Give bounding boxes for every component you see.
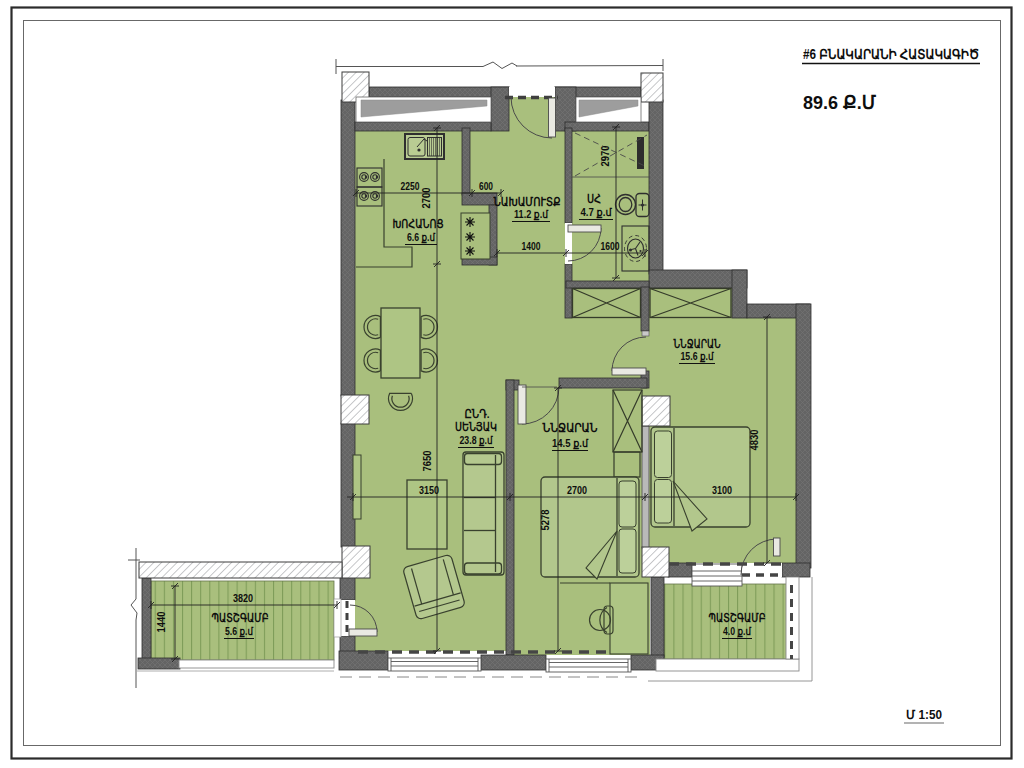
svg-text:#6 ԲՆԱԿԱՐԱՆԻ ՀԱՏԱԿԱԳԻԾ: #6 ԲՆԱԿԱՐԱՆԻ ՀԱՏԱԿԱԳԻԾ [803, 46, 979, 62]
svg-text:ՆԱԽԱՄՈՒՏՔ: ՆԱԽԱՄՈՒՏՔ [493, 196, 561, 208]
svg-text:4830: 4830 [749, 429, 760, 450]
svg-text:3150: 3150 [419, 485, 439, 496]
svg-text:1440: 1440 [156, 611, 167, 632]
svg-text:15.6 ք.մ: 15.6 ք.մ [681, 350, 715, 363]
svg-text:11.2 ք.մ: 11.2 ք.մ [514, 208, 549, 221]
svg-text:89.6 Ք.Մ: 89.6 Ք.Մ [803, 92, 876, 113]
svg-text:ՊԱՏՇԳԱՄԲ: ՊԱՏՇԳԱՄԲ [709, 612, 766, 624]
svg-text:ՍՀ: ՍՀ [587, 193, 601, 205]
svg-text:4.7 ք.մ: 4.7 ք.մ [581, 206, 613, 219]
svg-text:ՊԱՏՇԳԱՄԲ: ՊԱՏՇԳԱՄԲ [212, 612, 269, 624]
svg-text:ՆՆՋԱՐԱՆ: ՆՆՋԱՐԱՆ [542, 422, 598, 434]
svg-text:2700: 2700 [421, 187, 432, 208]
svg-text:5.6 ք.մ: 5.6 ք.մ [225, 625, 254, 638]
svg-text:ԽՈՀԱՆՈՑ: ԽՈՀԱՆՈՑ [393, 218, 444, 230]
svg-text:23.8 ք.մ: 23.8 ք.մ [460, 434, 494, 447]
svg-text:ՍԵՆՅԱԿ: ՍԵՆՅԱԿ [455, 421, 497, 433]
svg-text:ԸՆԴ.: ԸՆԴ. [465, 408, 490, 420]
svg-text:600: 600 [479, 181, 493, 192]
svg-text:2700: 2700 [567, 485, 587, 496]
svg-text:1400: 1400 [522, 241, 541, 252]
svg-text:3820: 3820 [233, 593, 253, 604]
svg-text:3100: 3100 [712, 485, 732, 496]
svg-text:5278: 5278 [540, 509, 551, 530]
svg-text:14.5 ք.մ: 14.5 ք.մ [552, 437, 589, 450]
svg-text:6.6 ք.մ: 6.6 ք.մ [407, 231, 436, 244]
svg-text:4.0 ք.մ: 4.0 ք.մ [723, 625, 752, 638]
svg-text:1600: 1600 [601, 241, 620, 252]
svg-text:Մ 1:50: Մ 1:50 [906, 708, 942, 722]
svg-text:2970: 2970 [600, 145, 611, 166]
svg-text:2250: 2250 [401, 181, 420, 192]
svg-text:7650: 7650 [422, 450, 433, 471]
svg-text:ՆՆՋԱՐԱՆ: ՆՆՋԱՐԱՆ [673, 338, 721, 350]
